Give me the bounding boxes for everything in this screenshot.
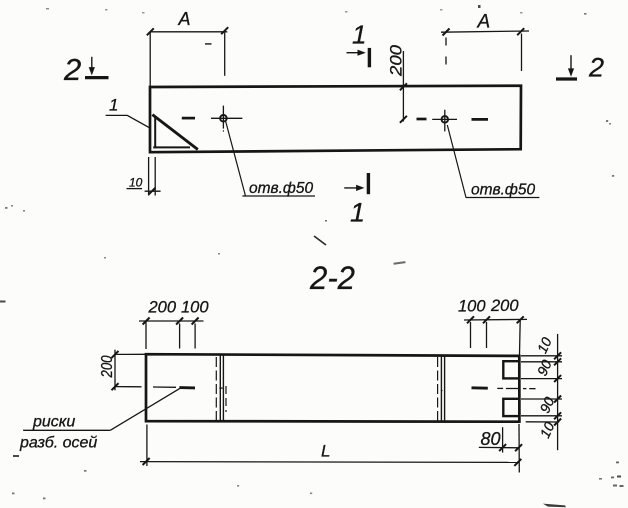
svg-text:2: 2	[63, 52, 81, 87]
svg-text:A: A	[178, 9, 191, 29]
svg-text:отв.ф50: отв.ф50	[471, 182, 535, 199]
svg-text:1: 1	[350, 198, 365, 228]
svg-text:2: 2	[588, 53, 604, 83]
svg-text:90: 90	[536, 394, 557, 415]
svg-text:разб. осей: разб. осей	[19, 435, 97, 452]
svg-text:2-2: 2-2	[309, 260, 355, 296]
svg-text:10: 10	[534, 335, 555, 356]
svg-text:100: 100	[458, 298, 486, 316]
svg-text:90: 90	[534, 357, 555, 378]
svg-text:отв.ф50: отв.ф50	[249, 180, 313, 197]
svg-text:1: 1	[109, 96, 118, 115]
svg-text:200: 200	[387, 44, 406, 77]
svg-text:80: 80	[481, 429, 501, 449]
svg-text:1: 1	[352, 20, 366, 50]
svg-text:10: 10	[129, 176, 143, 190]
svg-text:200: 200	[490, 297, 519, 315]
svg-text:L: L	[321, 442, 330, 461]
svg-text:риски: риски	[32, 414, 75, 431]
svg-text:A: A	[477, 12, 491, 33]
svg-text:200: 200	[148, 299, 177, 317]
svg-text:200: 200	[99, 355, 116, 378]
svg-text:100: 100	[181, 299, 209, 317]
